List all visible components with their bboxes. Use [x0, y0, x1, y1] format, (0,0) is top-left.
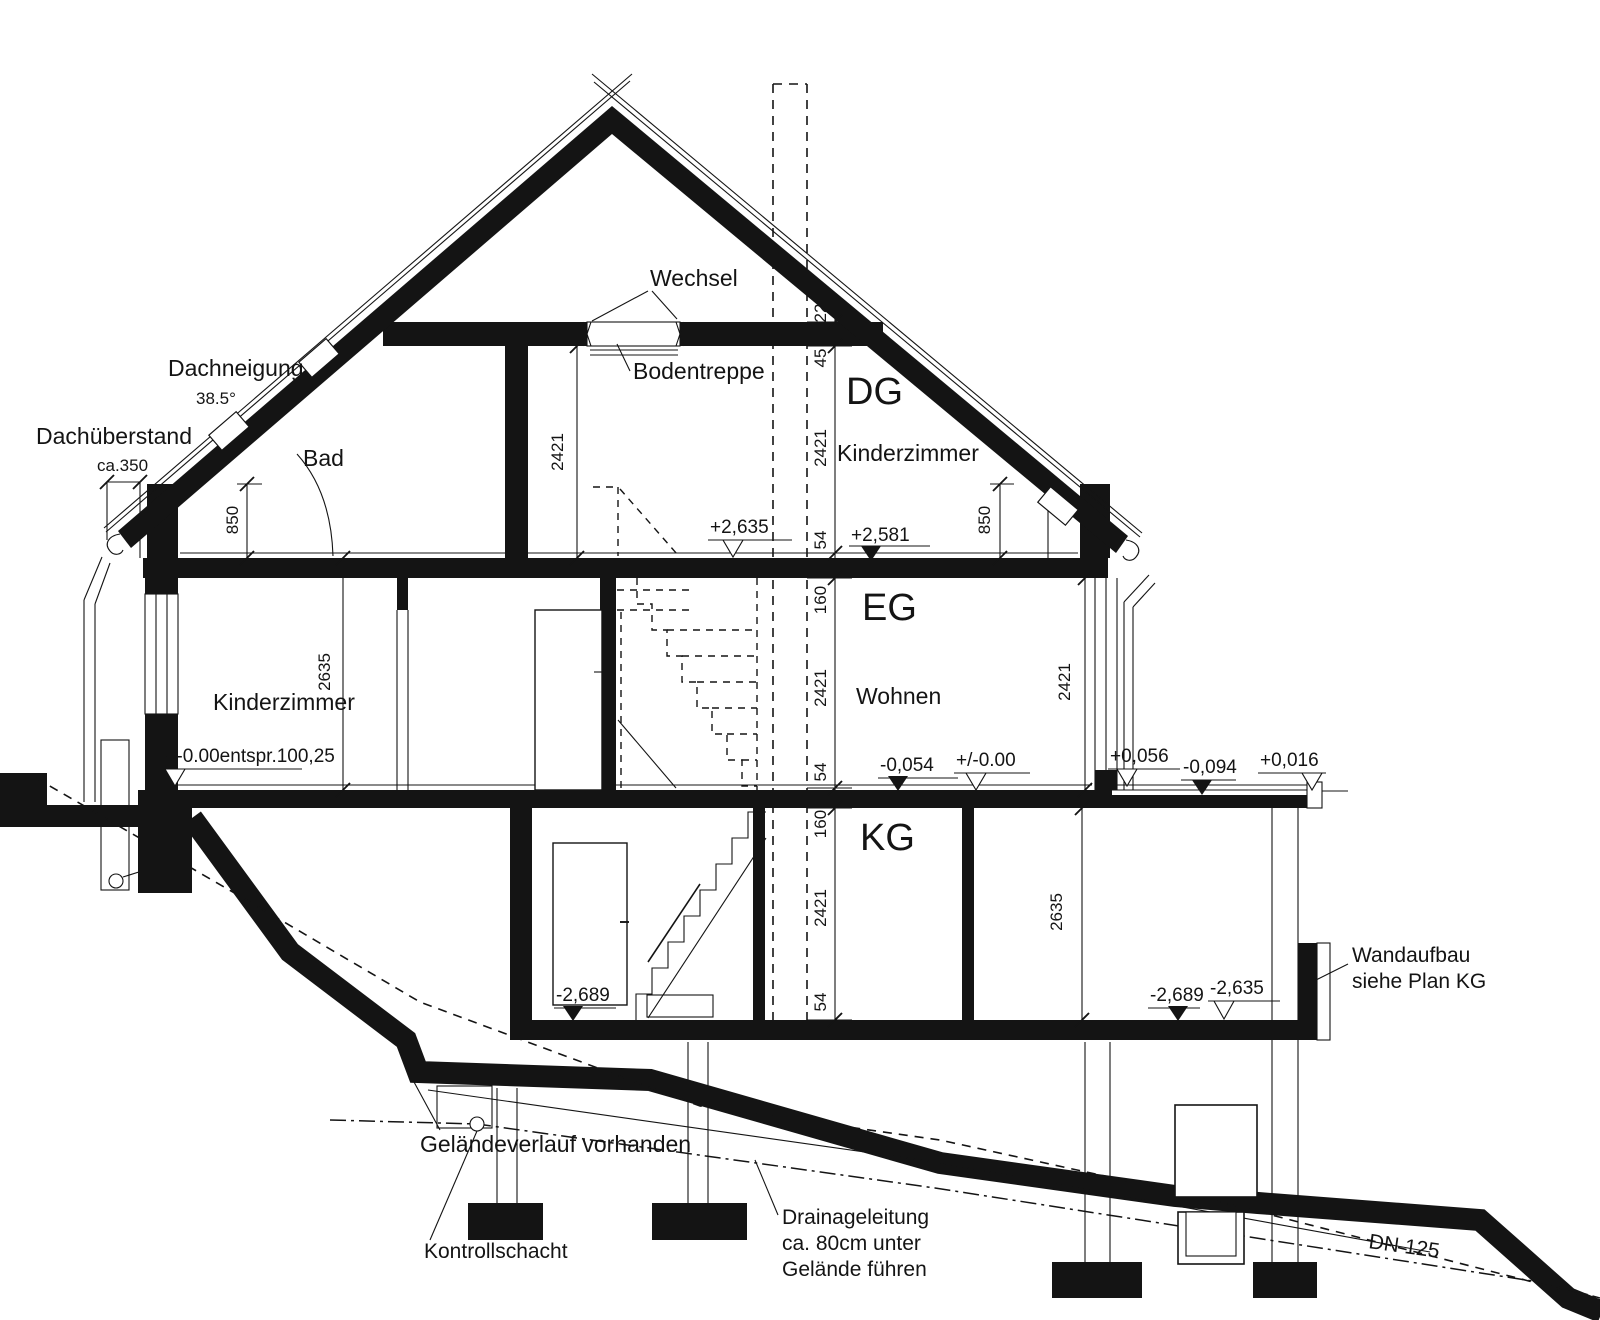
label-dn125: DN 125 [1367, 1230, 1441, 1263]
footing [468, 1203, 543, 1240]
level-kg-raw-right: -2,689 [1150, 985, 1204, 1006]
value-dachneigung: 38.5° [196, 389, 236, 408]
label-dachneigung: Dachneigung [168, 355, 304, 381]
room-label-dg-kinderzimmer: Kinderzimmer [837, 440, 979, 466]
left-drain-pipe-icon [109, 874, 123, 888]
light-shaft-inner [1186, 1212, 1236, 1256]
level-kg-ff-right: -2,635 [1210, 978, 1264, 999]
level-markers [158, 540, 1326, 1021]
kg-floor-slab [510, 1020, 1317, 1040]
label-gelaendeverlauf: Geländeverlauf vorhanden [420, 1131, 691, 1157]
dim-knee-right: 850 [975, 506, 994, 534]
left-upper-ground-slab [0, 773, 47, 807]
dim-chain-eg-screed: 54 [811, 763, 830, 782]
value-dachueberstand: ca.350 [97, 456, 148, 475]
eg-door-lintel [397, 568, 408, 610]
level-eg-zero-left: +/-0.00entspr.100,25 [160, 746, 335, 767]
label-bodentreppe: Bodentreppe [633, 358, 765, 384]
eg-floor-slab [143, 790, 1112, 808]
kg-door [553, 843, 627, 1005]
dg-floor-slab [143, 558, 1108, 578]
label-wechsel: Wechsel [650, 265, 738, 291]
label-drainage-1: Drainageleitung [782, 1206, 929, 1229]
label-wandaufbau-2: siehe Plan KG [1352, 970, 1486, 993]
architectural-section-page: Wechsel Bodentreppe Dachneigung 38.5° Da… [0, 0, 1600, 1320]
kg-right-wall-strip [1317, 943, 1330, 1040]
kg-left-wall [510, 808, 532, 1020]
eg-left-window [145, 594, 178, 714]
eg-right-wall-base [1095, 770, 1117, 790]
dim-chain-eg-h: 2421 [811, 669, 830, 707]
dim-chain-kg-slab: 160 [811, 810, 830, 838]
level-dg-ff: +2,635 [710, 517, 769, 538]
level-kg-raw-left: -2,689 [556, 985, 610, 1006]
gutter-left-icon [107, 534, 123, 554]
room-label-wohnen: Wohnen [856, 683, 941, 709]
footing [1253, 1262, 1317, 1298]
dim-chain-eg-slab: 160 [811, 586, 830, 614]
chimney-dashed [773, 84, 807, 1020]
footing [1052, 1262, 1142, 1298]
label-drainage-3: Gelände führen [782, 1258, 927, 1281]
footing [652, 1203, 747, 1240]
kg-stair [636, 812, 766, 1020]
level-eg-zero: +/-0.00 [956, 750, 1016, 771]
light-shaft-upper [1175, 1105, 1257, 1197]
dim-chain-kg-h: 2421 [811, 889, 830, 927]
eg-left-foundation [138, 790, 192, 893]
storey-label-eg: EG [862, 587, 917, 629]
level-terrace-end: +0,016 [1260, 750, 1319, 771]
level-terrace-top: +0,056 [1110, 746, 1169, 767]
wechsel-opening [587, 322, 680, 346]
gutter-right-icon [1123, 540, 1139, 560]
storey-label-dg: DG [846, 371, 903, 413]
label-kontrollschacht: Kontrollschacht [424, 1240, 568, 1263]
room-label-bad: Bad [303, 445, 344, 471]
dim-kg-right-room: 2635 [1047, 893, 1066, 931]
eg-door-leaf [618, 720, 676, 788]
dim-knee-left: 850 [223, 506, 242, 534]
level-terrace-raw: -0,094 [1183, 757, 1237, 778]
level-dg-raw: +2,581 [851, 525, 910, 546]
kontrollschacht-pipe-icon [470, 1117, 484, 1131]
dg-interior-wall [505, 346, 528, 558]
dim-eg-left-room: 2635 [315, 653, 334, 691]
label-dachueberstand: Dachüberstand [36, 423, 192, 449]
dim-chain-45: 45 [811, 349, 830, 368]
level-eg-raw: -0,054 [880, 755, 934, 776]
dim-chain-dg-screed: 54 [811, 531, 830, 550]
collar-beam-left [383, 322, 587, 346]
kg-right-wall-insulation [1298, 943, 1317, 1040]
terrace-slab [1112, 795, 1310, 808]
label-wandaufbau-1: Wandaufbau [1352, 944, 1470, 967]
kg-mid-wall [753, 808, 765, 1020]
kg-mid-wall-2 [962, 808, 974, 1020]
room-label-eg-kinderzimmer: Kinderzimmer [213, 689, 355, 715]
dim-dg-stair: 2421 [548, 433, 567, 471]
dim-chain-22: 22 [811, 304, 830, 323]
dim-chain-kg-screed: 54 [811, 993, 830, 1012]
storey-label-kg: KG [860, 817, 915, 859]
eg-door [535, 610, 602, 790]
dim-eg-right-wall: 2421 [1055, 663, 1074, 701]
dim-chain-dg-h: 2421 [811, 429, 830, 467]
section-drawing: Wechsel Bodentreppe Dachneigung 38.5° Da… [0, 0, 1600, 1320]
label-drainage-2: ca. 80cm unter [782, 1232, 921, 1255]
